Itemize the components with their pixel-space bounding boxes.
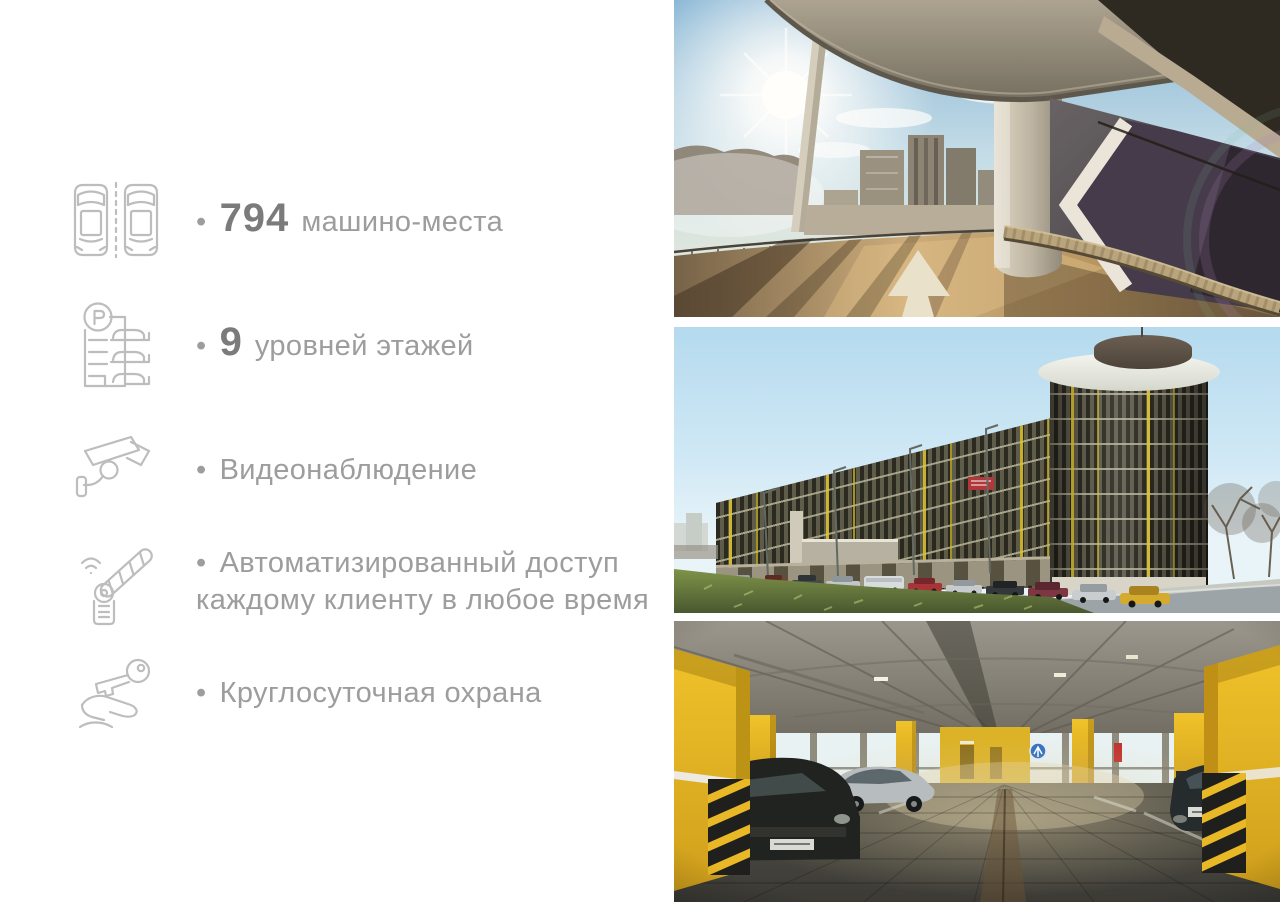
feature-label: •9уровней этажей [196, 324, 474, 365]
bullet: • [196, 454, 207, 486]
feature-label: •Видеонаблюдение [196, 452, 477, 489]
cctv-camera-icon [70, 434, 162, 506]
bullet: • [196, 547, 207, 579]
feature-list: •794машино-места •9уровней этажей [0, 0, 674, 902]
feature-label: •794машино-места [196, 200, 503, 241]
bullet: • [196, 677, 207, 709]
red-banner [968, 477, 994, 490]
parking-ramp-photo [674, 0, 1280, 317]
bare-trees [1204, 481, 1280, 579]
distant-buildings [674, 513, 718, 559]
barrier-gate-icon [70, 538, 162, 626]
feature-row-access: •Автоматизированный доступкаждому клиент… [70, 532, 649, 632]
feature-number: 9 [220, 320, 243, 364]
bullet: • [196, 330, 207, 362]
photo-column [674, 0, 1280, 902]
feature-number: 794 [220, 196, 290, 240]
key-in-hand-icon [70, 655, 162, 731]
parking-presentation-slide: •794машино-места •9уровней этажей [0, 0, 1280, 902]
bullet: • [196, 206, 207, 238]
feature-row-levels: •9уровней этажей [70, 296, 474, 392]
two-cars-icon [70, 181, 162, 259]
parking-building-photo [674, 327, 1280, 613]
feature-row-security: •Круглосуточная охрана [70, 650, 542, 736]
feature-row-cctv: •Видеонаблюдение [70, 430, 477, 510]
street-lamps [764, 425, 998, 577]
parking-levels-icon [70, 300, 162, 388]
feature-row-spaces: •794машино-места [70, 176, 503, 264]
parking-interior-photo [674, 621, 1280, 902]
feature-label: •Автоматизированный доступкаждому клиент… [196, 545, 649, 619]
feature-label: •Круглосуточная охрана [196, 675, 542, 712]
